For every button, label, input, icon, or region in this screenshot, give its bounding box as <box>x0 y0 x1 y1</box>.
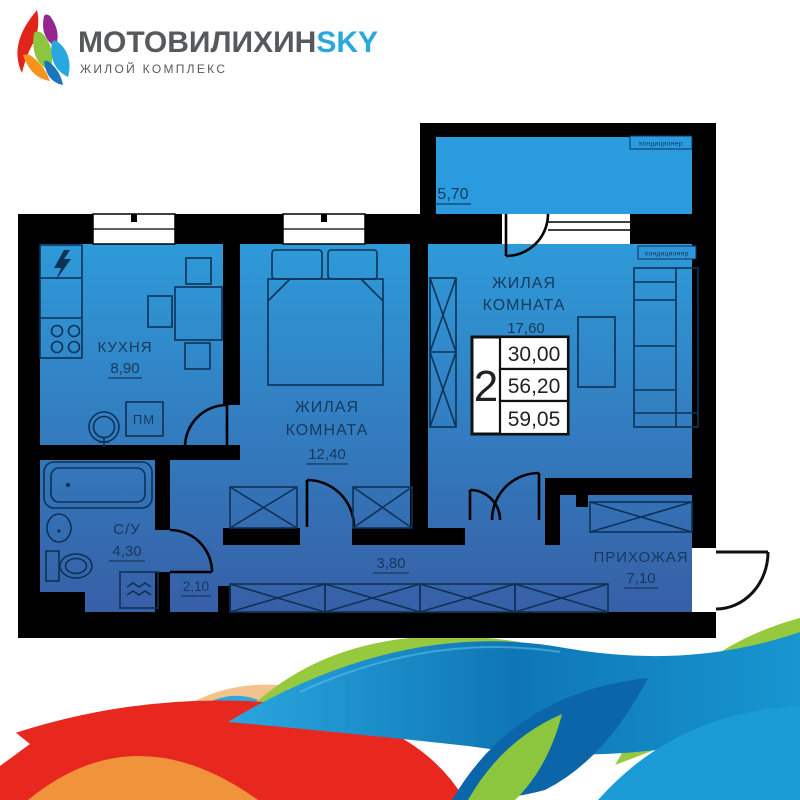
bedroom-area: 12,40 <box>308 446 346 463</box>
floor-plan: кондиционер кондиционер 5,70 КУХНЯ 8,90 … <box>18 123 768 638</box>
windows <box>93 214 630 244</box>
corridor-small-area: 2,10 <box>183 579 209 594</box>
badge-row1: 30,00 <box>508 343 561 366</box>
living-label-line2: КОМНАТА <box>483 297 566 314</box>
logo-title-main: МОТОВИЛИХИН <box>78 26 316 59</box>
bathroom-label: С/У <box>113 521 141 538</box>
hallway-label: ПРИХОЖАЯ <box>593 549 688 566</box>
badge-row3: 59,05 <box>508 408 561 431</box>
balcony-area: 5,70 <box>437 186 468 203</box>
corridor-area: 3,80 <box>376 555 405 572</box>
ac-badge-living: кондиционер <box>638 246 696 259</box>
logo-flame-icon <box>17 10 69 85</box>
logo-subtitle: ЖИЛОЙ КОМПЛЕКС <box>80 61 227 76</box>
bedroom-label-line2: КОМНАТА <box>286 422 369 439</box>
page: кондиционер кондиционер 5,70 КУХНЯ 8,90 … <box>0 0 800 800</box>
floor-plan-canvas: кондиционер кондиционер 5,70 КУХНЯ 8,90 … <box>0 0 800 800</box>
entrance-door-arc <box>716 552 768 609</box>
info-badge: 2 30,00 56,20 59,05 <box>472 337 568 434</box>
bedroom-label-line1: ЖИЛАЯ <box>295 399 359 416</box>
living-balcony-window <box>548 222 630 230</box>
rooms-count: 2 <box>474 362 498 411</box>
logo-title: МОТОВИЛИХИНSKY <box>78 26 378 59</box>
dishwasher-label: ПМ <box>133 412 155 427</box>
bathroom-area: 4,30 <box>112 543 141 560</box>
waves-decoration <box>0 618 800 800</box>
logo: МОТОВИЛИХИНSKY ЖИЛОЙ КОМПЛЕКС <box>17 10 378 85</box>
ac-badge-living-label: кондиционер <box>645 251 689 258</box>
living-label-line1: ЖИЛАЯ <box>492 275 556 292</box>
hallway-area: 7,10 <box>626 570 655 587</box>
bedroom-window <box>283 214 365 244</box>
living-area: 17,60 <box>507 320 545 337</box>
kitchen-label: КУХНЯ <box>97 339 152 356</box>
kitchen-window <box>93 214 175 244</box>
badge-row2: 56,20 <box>508 375 561 398</box>
ac-badge-balcony-label: кондиционер <box>639 141 683 148</box>
logo-title-accent: SKY <box>316 26 378 59</box>
ac-badge-balcony: кондиционер <box>630 136 692 149</box>
kitchen-area: 8,90 <box>110 360 139 377</box>
